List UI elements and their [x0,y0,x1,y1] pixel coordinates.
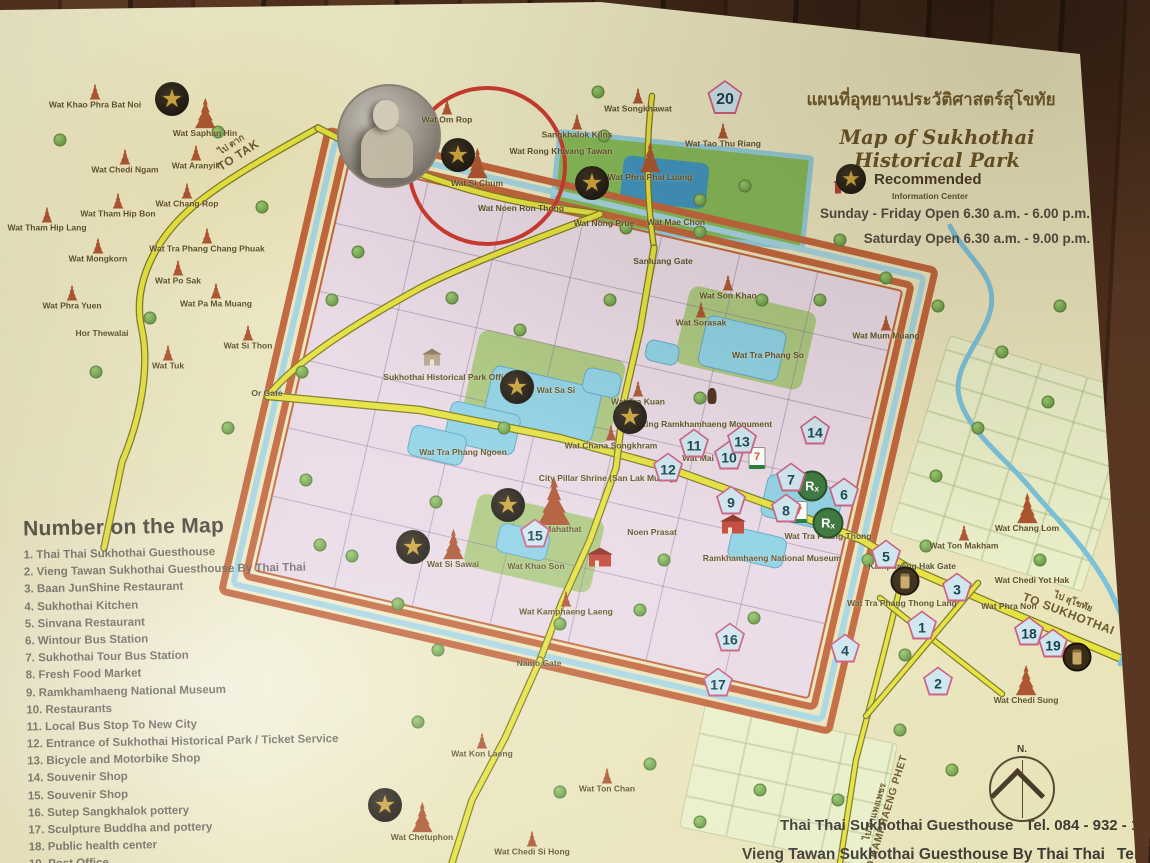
road [268,214,600,396]
legend-item-10: 10. Restaurants [26,697,426,716]
compass-arrow [990,768,1045,823]
road [540,248,654,660]
legend-item-11: 11. Local Bus Stop To New City [26,714,426,733]
map-paper: Wat Khao Phra Bat NoiWat Saphan HinWat C… [0,0,1150,863]
legend-item-18: 18. Public health center [29,835,429,854]
buddha-statue-photo [373,100,399,130]
compass-circle [989,756,1055,822]
recommended-star-icon: ★ [836,164,866,194]
guesthouse-name: Thai Thai Sukhothai Guesthouse [780,817,1013,834]
legend-item-list: 1. Thai Thai Sukhothai Guesthouse2. Vien… [23,543,429,863]
buddha-statue-photo [361,126,413,178]
legend-recommended: ★ Recommended [836,164,982,194]
legend-item-8: 8. Fresh Food Market [26,663,426,682]
road [104,128,318,548]
legend-item-9: 9. Ramkhamhaeng National Museum [26,680,426,699]
contact-vieng-tawan: Vieng Tawan Sukhothai Guesthouse By Thai… [742,846,1150,863]
guesthouse-name: Vieng Tawan Sukhothai Guesthouse By Thai… [742,846,1105,863]
photo-of-sukhothai-map: Wat Khao Phra Bat NoiWat Saphan HinWat C… [0,0,1150,863]
compass-north-label: N. [988,744,1056,755]
contact-thai-thai: Thai Thai Sukhothai GuesthouseTel. 084 -… [780,817,1150,834]
map-title-thai: แผนที่อุทยานประวัติศาสตร์สุโขทัย [778,86,1084,113]
legend-item-3: 3. Baan JunShine Restaurant [24,577,424,596]
legend-item-1: 1. Thai Thai Sukhothai Guesthouse [23,543,423,562]
number-legend-panel: Number on the Map 1. Thai Thai Sukhothai… [23,511,429,863]
legend-item-12: 12. Entrance of Sukhothai Historical Par… [27,732,427,751]
legend-item-4: 4. Sukhothai Kitchen [24,594,424,613]
legend-item-14: 14. Souvenir Shop [27,766,427,785]
legend-label: Recommended [874,171,982,188]
opening-hours-weekday: Sunday - Friday Open 6.30 a.m. - 6.00 p.… [770,206,1140,221]
legend-item-2: 2. Vieng Tawan Sukhothai Guesthouse By T… [24,560,424,579]
legend-item-5: 5. Sinvana Restaurant [25,611,425,630]
legend-item-13: 13. Bicycle and Motorbike Shop [27,749,427,768]
legend-item-6: 6. Wintour Bus Station [25,628,425,647]
compass-rose: N. [988,744,1056,822]
legend-item-16: 16. Sutep Sangkhalok pottery [28,800,428,819]
legend-item-7: 7. Sukhothai Tour Bus Station [25,646,425,665]
legend-item-15: 15. Souvenir Shop [28,783,428,802]
inset-photo-buddha-wat-si-chum [337,84,441,188]
legend-item-19: 19. Post Office [29,852,429,863]
legend-item-17: 17. Sculpture Buddha and pottery [28,817,428,836]
